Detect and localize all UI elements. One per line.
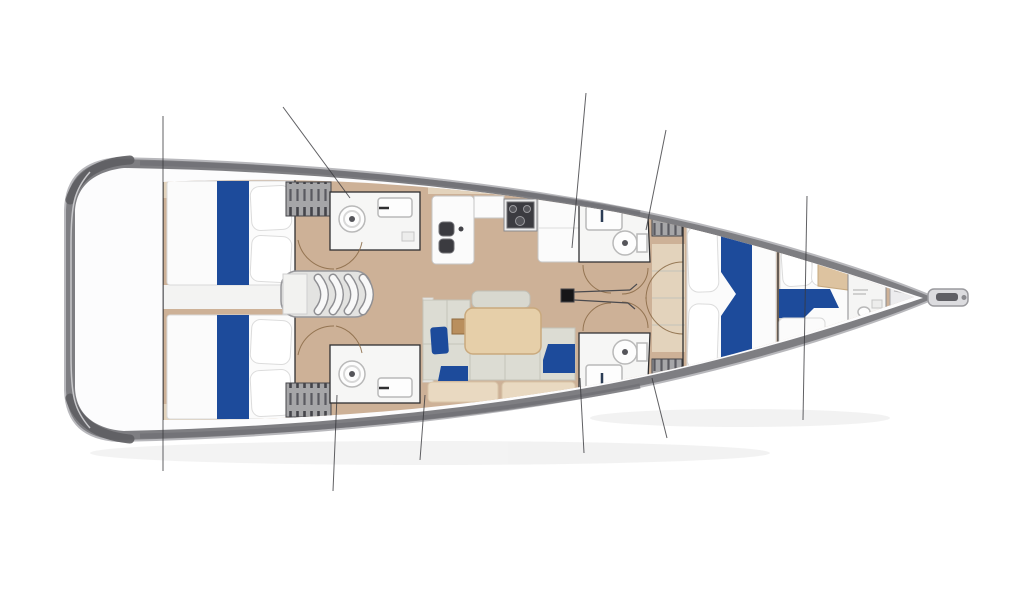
sofa-cushion-blue (430, 326, 449, 354)
footrest-step (428, 382, 498, 402)
locker-hatched (286, 182, 331, 216)
toilet-tank (637, 234, 647, 252)
toilet-center (622, 240, 628, 246)
sofa-cushion-blue (438, 366, 468, 381)
locker-hatched (286, 383, 331, 417)
mast (561, 289, 574, 302)
toilet-center (349, 371, 355, 377)
toilet-center (622, 349, 628, 355)
salon-table (465, 308, 541, 354)
head-detail (402, 232, 414, 241)
chaise-cushion (472, 291, 530, 308)
toilet-center (349, 216, 355, 222)
pillow (250, 319, 292, 365)
galley-counter (474, 196, 504, 218)
aft-corridor (163, 285, 283, 309)
steps-landing (283, 274, 307, 314)
head-detail (872, 300, 882, 308)
aft-cabin-port (167, 181, 295, 285)
faucet-icon (459, 227, 464, 232)
burner-icon (510, 206, 517, 213)
burner-icon (516, 217, 525, 226)
burner-icon (524, 206, 531, 213)
pillow (687, 225, 719, 292)
sofa-cushion-blue (543, 344, 575, 373)
anchor-roller (936, 293, 958, 301)
bed-runner-blue (217, 315, 249, 419)
bed-runner-blue (217, 181, 249, 285)
bowsprit-tip (962, 295, 967, 300)
sink-bowl (439, 222, 454, 236)
yacht-deck-plan-page (0, 0, 1024, 600)
aft-cabin-starboard (167, 315, 295, 419)
sink-bowl (439, 239, 454, 253)
bowsprit (928, 289, 968, 306)
companionway-steps (281, 271, 371, 317)
toilet-tank (637, 343, 647, 361)
yacht-deck-plan (0, 0, 1024, 600)
rigging-line (652, 378, 667, 438)
